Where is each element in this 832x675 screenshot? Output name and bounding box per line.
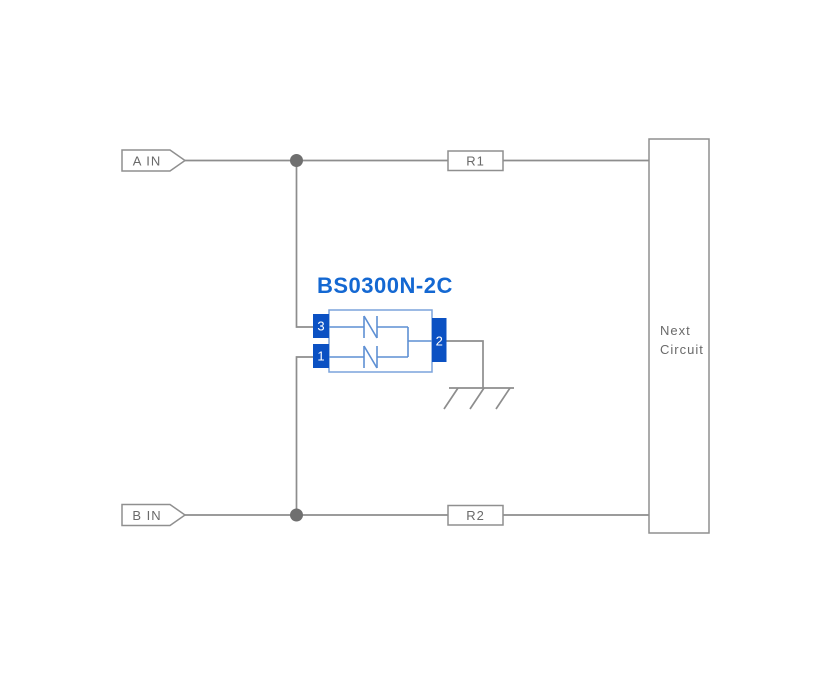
pin-3-label: 3 [317, 319, 324, 334]
input-b-flag: B IN [122, 505, 185, 526]
input-b-label: B IN [132, 508, 161, 523]
pin-2-label: 2 [436, 334, 443, 349]
input-a-flag: A IN [122, 150, 185, 171]
junction-dot-a [290, 154, 303, 167]
ground-connection [444, 341, 514, 409]
next-circuit-label-line2: Circuit [660, 342, 704, 357]
ground-hatch-1 [444, 388, 458, 409]
component-title: BS0300N-2C [317, 273, 453, 298]
junction-dot-b [290, 509, 303, 522]
input-a-label: A IN [133, 154, 162, 169]
ground-hatch-3 [496, 388, 510, 409]
wire-pin2-to-ground [447, 341, 484, 388]
resistor-r1-label: R1 [466, 154, 485, 169]
wire-a-to-pin3 [297, 161, 314, 328]
wire-b-to-pin1 [297, 357, 314, 515]
pin-1: 1 [313, 344, 329, 368]
ground-hatch-2 [470, 388, 484, 409]
circuit-diagram: A IN R1 B IN R2 Next Circuit [0, 0, 832, 675]
earth-ground-icon [444, 388, 514, 409]
resistor-r2-label: R2 [466, 508, 485, 523]
tvs-component: BS0300N-2C [313, 273, 453, 372]
resistor-r1: R1 [448, 151, 503, 171]
resistor-r2: R2 [448, 506, 503, 526]
pin-1-label: 1 [317, 349, 324, 364]
schematic-page: A IN R1 B IN R2 Next Circuit [0, 0, 832, 675]
next-circuit-label-line1: Next [660, 323, 691, 338]
pin-3: 3 [313, 314, 329, 338]
next-circuit-block: Next Circuit [649, 139, 709, 533]
pin-2: 2 [432, 318, 447, 362]
